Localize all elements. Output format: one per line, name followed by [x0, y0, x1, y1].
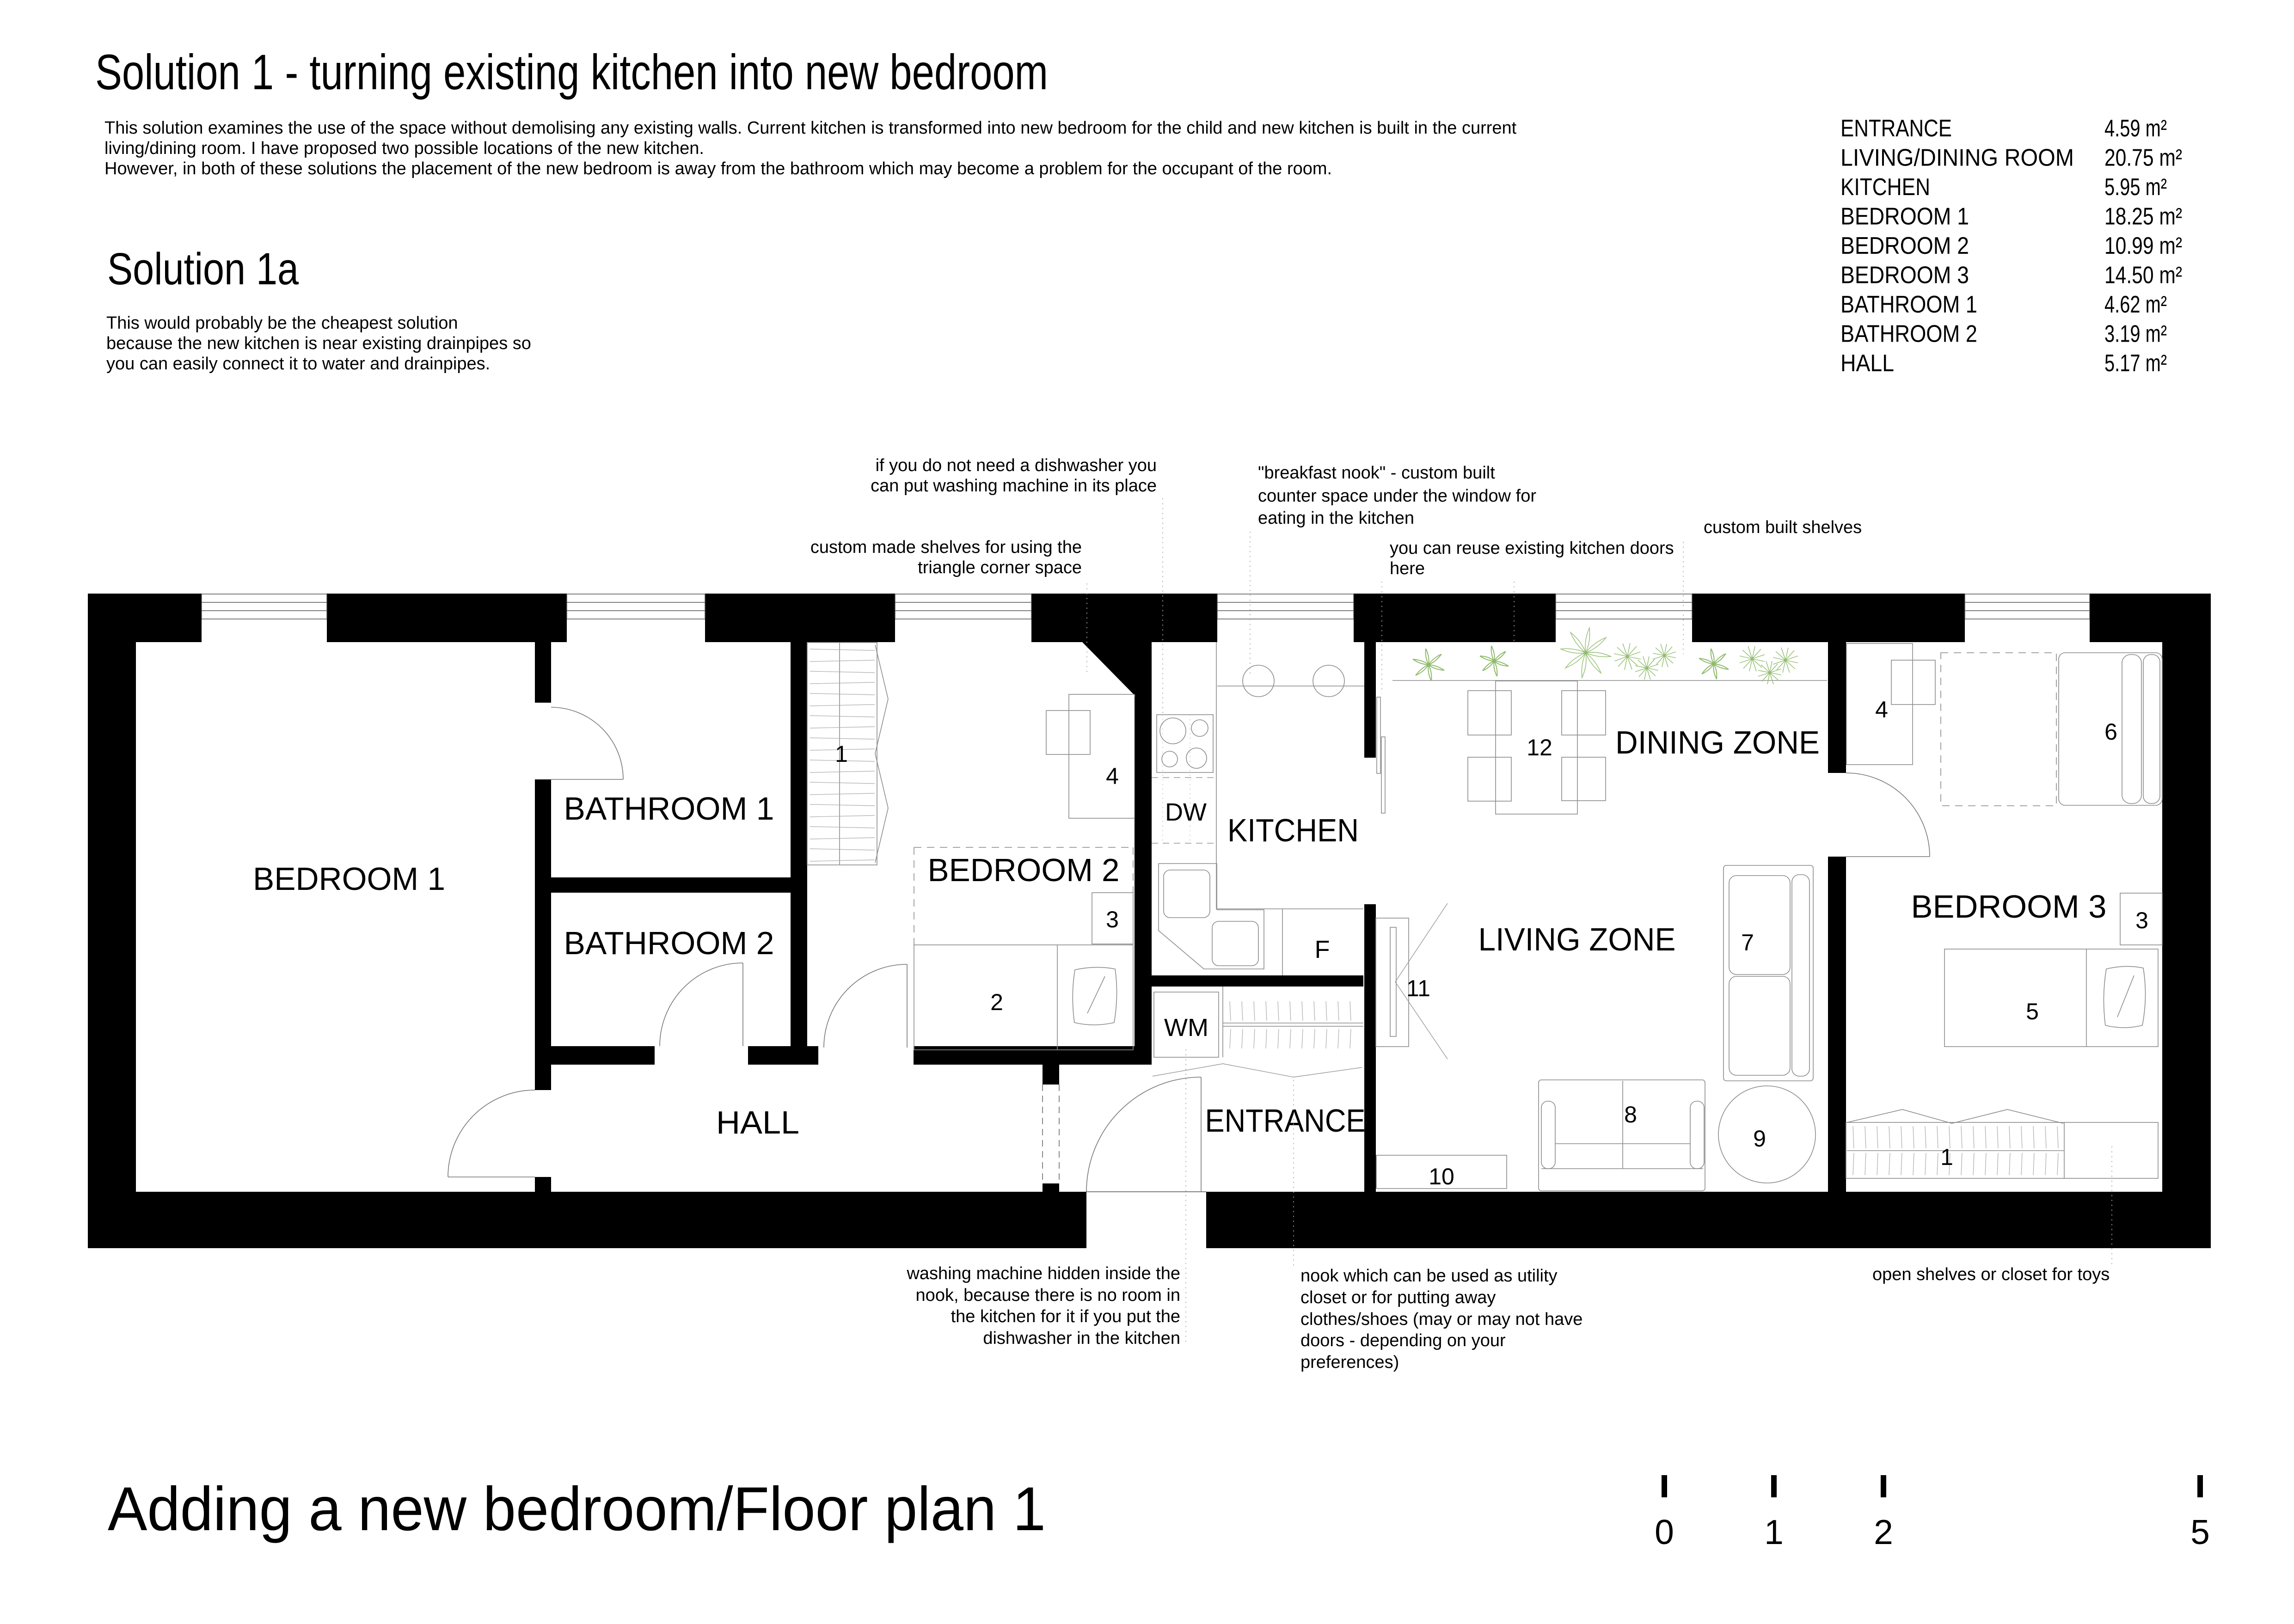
svg-text:nook, because there is no room: nook, because there is no room in — [916, 1286, 1180, 1305]
svg-text:LIVING/DINING ROOM: LIVING/DINING ROOM — [1840, 145, 2074, 172]
svg-text:clothes/shoes (may or may not: clothes/shoes (may or may not have — [1300, 1310, 1582, 1329]
svg-text:This would probably be the che: This would probably be the cheapest solu… — [106, 313, 458, 333]
svg-text:BEDROOM 2: BEDROOM 2 — [1840, 233, 1969, 259]
svg-text:7: 7 — [1741, 930, 1754, 956]
svg-text:washing machine hidden inside: washing machine hidden inside the — [906, 1264, 1180, 1283]
svg-text:KITCHEN: KITCHEN — [1840, 174, 1930, 201]
svg-text:3.19 m²: 3.19 m² — [2104, 321, 2167, 348]
svg-text:Solution 1 - turning existing: Solution 1 - turning existing kitchen in… — [95, 44, 1048, 100]
svg-text:BEDROOM 3: BEDROOM 3 — [1840, 262, 1969, 289]
svg-text:because the new kitchen is nea: because the new kitchen is near existing… — [106, 334, 531, 353]
svg-text:4.59 m²: 4.59 m² — [2104, 115, 2167, 142]
svg-text:eating in the kitchen: eating in the kitchen — [1258, 509, 1414, 528]
svg-text:However, in both of these solu: However, in both of these solutions the … — [104, 159, 1332, 178]
svg-text:6: 6 — [2104, 719, 2117, 745]
svg-text:custom made shelves for using: custom made shelves for using the — [810, 538, 1082, 557]
svg-text:12: 12 — [1527, 735, 1552, 760]
svg-text:5: 5 — [2190, 1513, 2210, 1551]
svg-text:living/dining room. I have pro: living/dining room. I have proposed two … — [104, 139, 704, 158]
svg-text:BATHROOM 1: BATHROOM 1 — [564, 791, 774, 827]
svg-text:dishwasher in the kitchen: dishwasher in the kitchen — [983, 1329, 1180, 1348]
svg-text:open shelves or closet for toy: open shelves or closet for toys — [1872, 1265, 2110, 1284]
svg-text:2: 2 — [1874, 1513, 1893, 1551]
svg-text:LIVING ZONE: LIVING ZONE — [1478, 921, 1676, 957]
svg-text:BATHROOM 1: BATHROOM 1 — [1840, 291, 1977, 318]
svg-text:"breakfast nook" - custom buil: "breakfast nook" - custom built — [1258, 463, 1495, 483]
svg-text:BEDROOM 2: BEDROOM 2 — [928, 852, 1120, 888]
svg-text:8: 8 — [1624, 1102, 1637, 1128]
svg-text:preferences): preferences) — [1300, 1353, 1399, 1372]
svg-text:BEDROOM 1: BEDROOM 1 — [1840, 203, 1969, 230]
svg-text:18.25 m²: 18.25 m² — [2104, 203, 2182, 230]
svg-text:Adding a new bedroom/Floor pla: Adding a new bedroom/Floor plan 1 — [108, 1475, 1046, 1544]
svg-text:doors - depending on your: doors - depending on your — [1300, 1331, 1506, 1350]
svg-text:closet or for putting away: closet or for putting away — [1300, 1288, 1496, 1307]
svg-text:14.50 m²: 14.50 m² — [2104, 262, 2182, 289]
svg-text:HALL: HALL — [716, 1104, 799, 1140]
svg-text:BATHROOM 2: BATHROOM 2 — [564, 925, 774, 961]
svg-text:5.17 m²: 5.17 m² — [2104, 350, 2167, 377]
svg-text:HALL: HALL — [1840, 350, 1894, 377]
svg-text:4: 4 — [1106, 763, 1119, 789]
svg-text:BEDROOM 3: BEDROOM 3 — [1911, 889, 2107, 925]
svg-text:3: 3 — [2135, 907, 2148, 933]
svg-text:you can easily connect it to w: you can easily connect it to water and d… — [106, 354, 490, 374]
svg-text:0: 0 — [1655, 1513, 1674, 1551]
svg-text:5: 5 — [2026, 999, 2039, 1024]
svg-text:WM: WM — [1164, 1014, 1208, 1042]
svg-text:the kitchen for it if you put: the kitchen for it if you put the — [951, 1307, 1180, 1326]
svg-text:1: 1 — [1764, 1513, 1784, 1551]
svg-text:KITCHEN: KITCHEN — [1227, 812, 1359, 848]
svg-text:triangle corner space: triangle corner space — [918, 558, 1082, 577]
svg-text:ENTRANCE: ENTRANCE — [1840, 115, 1952, 142]
svg-text:5.95 m²: 5.95 m² — [2104, 174, 2167, 201]
svg-text:10: 10 — [1429, 1164, 1454, 1189]
svg-text:DW: DW — [1165, 798, 1207, 826]
svg-text:3: 3 — [1106, 907, 1119, 932]
svg-text:Solution 1a: Solution 1a — [107, 244, 299, 294]
svg-text:20.75 m²: 20.75 m² — [2104, 145, 2182, 172]
svg-text:BATHROOM 2: BATHROOM 2 — [1840, 321, 1977, 348]
svg-text:you can reuse existing kitchen: you can reuse existing kitchen doors — [1390, 539, 1674, 558]
svg-text:counter space under the window: counter space under the window for — [1258, 486, 1536, 506]
svg-text:DINING ZONE: DINING ZONE — [1615, 724, 1820, 760]
svg-text:ENTRANCE: ENTRANCE — [1205, 1103, 1366, 1139]
svg-text:2: 2 — [990, 989, 1003, 1015]
svg-text:4.62 m²: 4.62 m² — [2104, 291, 2167, 318]
svg-text:F: F — [1315, 936, 1330, 963]
svg-text:here: here — [1390, 559, 1425, 578]
svg-text:This solution examines the use: This solution examines the use of the sp… — [104, 118, 1517, 138]
svg-text:1: 1 — [1940, 1144, 1953, 1170]
svg-text:can put washing machine in its: can put washing machine in its place — [871, 476, 1157, 496]
svg-text:9: 9 — [1753, 1126, 1766, 1152]
svg-text:nook which can be used as util: nook which can be used as utility — [1300, 1266, 1558, 1286]
svg-text:4: 4 — [1875, 697, 1888, 723]
svg-text:10.99 m²: 10.99 m² — [2104, 233, 2182, 259]
svg-text:BEDROOM 1: BEDROOM 1 — [253, 861, 445, 897]
svg-text:custom built shelves: custom built shelves — [1704, 518, 1862, 537]
svg-text:if you do not need a dishwashe: if you do not need a dishwasher you — [876, 456, 1157, 475]
svg-text:11: 11 — [1406, 975, 1430, 1001]
svg-text:1: 1 — [835, 741, 848, 767]
